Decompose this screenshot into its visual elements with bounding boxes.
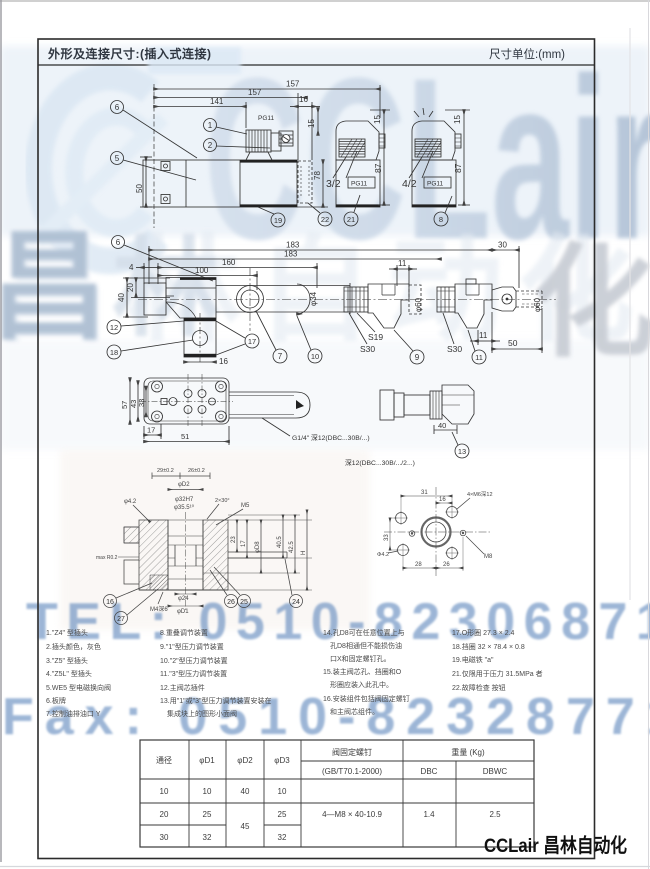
svg-text:16: 16 bbox=[106, 599, 114, 606]
svg-text:PG11: PG11 bbox=[351, 181, 368, 188]
svg-text:PG11: PG11 bbox=[258, 115, 275, 122]
svg-text:18.挡圈 32 × 78.4 × 0.8: 18.挡圈 32 × 78.4 × 0.8 bbox=[452, 642, 525, 651]
svg-text:32: 32 bbox=[278, 833, 287, 842]
svg-text:PG11: PG11 bbox=[427, 181, 444, 188]
svg-text:max R0.2: max R0.2 bbox=[96, 555, 118, 561]
svg-text:40: 40 bbox=[117, 293, 126, 302]
svg-text:尺寸单位:(mm): 尺寸单位:(mm) bbox=[489, 47, 565, 61]
svg-text:DBWC: DBWC bbox=[483, 767, 508, 776]
svg-text:φ4.2: φ4.2 bbox=[124, 499, 137, 505]
svg-text:141: 141 bbox=[210, 97, 224, 106]
svg-text:φ34: φ34 bbox=[309, 291, 318, 306]
svg-text:17: 17 bbox=[241, 540, 247, 547]
svg-text:4: 4 bbox=[129, 263, 134, 272]
svg-text:7.控制油排油口 Y: 7.控制油排油口 Y bbox=[46, 709, 101, 718]
svg-text:形圈应装入此孔中。: 形圈应装入此孔中。 bbox=[330, 680, 393, 689]
svg-text:M4深6: M4深6 bbox=[150, 605, 168, 613]
svg-text:15: 15 bbox=[307, 119, 316, 128]
svg-text:S30: S30 bbox=[447, 344, 462, 354]
svg-text:10: 10 bbox=[160, 787, 169, 796]
svg-text:10: 10 bbox=[278, 787, 287, 796]
svg-text:9: 9 bbox=[415, 353, 420, 362]
svg-text:11: 11 bbox=[479, 331, 488, 340]
svg-text:2×30°: 2×30° bbox=[215, 498, 230, 504]
svg-text:16.安装组件包括阀固定螺钉: 16.安装组件包括阀固定螺钉 bbox=[323, 694, 410, 703]
svg-text:孔D8相通但不能损伤油: 孔D8相通但不能损伤油 bbox=[330, 641, 402, 650]
svg-text:87: 87 bbox=[373, 163, 383, 173]
svg-text:φ60: φ60 bbox=[414, 297, 423, 312]
svg-text:183: 183 bbox=[284, 250, 298, 259]
svg-text:4."Z5L" 型插头: 4."Z5L" 型插头 bbox=[46, 669, 92, 678]
svg-text:15: 15 bbox=[373, 115, 382, 124]
svg-text:100: 100 bbox=[195, 266, 209, 275]
svg-text:DBC: DBC bbox=[421, 767, 438, 776]
svg-text:和主阀芯组件。: 和主阀芯组件。 bbox=[330, 707, 379, 716]
svg-text:32: 32 bbox=[203, 833, 212, 842]
svg-text:183: 183 bbox=[286, 241, 300, 250]
svg-text:S19: S19 bbox=[368, 332, 383, 342]
svg-text:26: 26 bbox=[443, 562, 450, 568]
svg-text:M5: M5 bbox=[241, 503, 250, 509]
svg-text:87: 87 bbox=[453, 163, 463, 173]
svg-text:10: 10 bbox=[203, 787, 212, 796]
svg-text:10: 10 bbox=[311, 352, 319, 361]
svg-text:21.仅限用于压力 31.5MPa 者: 21.仅限用于压力 31.5MPa 者 bbox=[452, 669, 543, 678]
svg-text:11: 11 bbox=[475, 353, 483, 362]
svg-text:6.板牌: 6.板牌 bbox=[46, 696, 66, 705]
svg-text:24: 24 bbox=[292, 599, 300, 606]
svg-text:Φ4.2: Φ4.2 bbox=[377, 552, 389, 558]
svg-text:6: 6 bbox=[116, 238, 121, 247]
svg-text:M8: M8 bbox=[484, 554, 493, 560]
svg-text:3."Z5" 型插头: 3."Z5" 型插头 bbox=[46, 656, 88, 665]
svg-text:17: 17 bbox=[248, 337, 256, 346]
svg-text:φD3: φD3 bbox=[274, 756, 290, 765]
svg-text:8: 8 bbox=[439, 215, 443, 224]
svg-text:2: 2 bbox=[208, 141, 213, 150]
svg-text:通径: 通径 bbox=[156, 755, 172, 765]
svg-text:4×M6深12: 4×M6深12 bbox=[467, 490, 493, 498]
svg-text:50: 50 bbox=[508, 338, 518, 348]
svg-text:G1/4" 深12(DBC...30B/...): G1/4" 深12(DBC...30B/...) bbox=[292, 433, 370, 442]
svg-text:8.重叠调节装置: 8.重叠调节装置 bbox=[160, 628, 208, 637]
svg-text:集成块上的图形小面阀: 集成块上的图形小面阀 bbox=[167, 709, 237, 718]
svg-text:φ60: φ60 bbox=[533, 297, 542, 312]
svg-text:φ35.5¹⁰: φ35.5¹⁰ bbox=[174, 504, 195, 511]
svg-text:φD2: φD2 bbox=[178, 482, 190, 488]
svg-text:H: H bbox=[301, 551, 307, 555]
svg-text:2.5: 2.5 bbox=[489, 810, 501, 819]
svg-text:31: 31 bbox=[421, 490, 428, 496]
svg-text:11: 11 bbox=[398, 259, 407, 268]
svg-text:26: 26 bbox=[227, 599, 235, 606]
svg-text:1: 1 bbox=[208, 121, 213, 130]
svg-text:5: 5 bbox=[115, 154, 120, 163]
svg-text:9."1"型压力调节装置: 9."1"型压力调节装置 bbox=[160, 642, 224, 651]
svg-text:13.用"1"或"3"型压力调节装置安装在: 13.用"1"或"3"型压力调节装置安装在 bbox=[160, 696, 271, 705]
svg-text:25: 25 bbox=[203, 810, 212, 819]
svg-text:12.主阀芯插件: 12.主阀芯插件 bbox=[160, 683, 205, 692]
svg-text:深12(DBC...30B/.../2...): 深12(DBC...30B/.../2...) bbox=[345, 458, 415, 467]
svg-text:40.5: 40.5 bbox=[277, 536, 283, 548]
svg-text:昌: 昌 bbox=[0, 222, 108, 354]
svg-text:化: 化 bbox=[533, 235, 650, 371]
svg-text:26±0.2: 26±0.2 bbox=[188, 468, 205, 474]
svg-text:57: 57 bbox=[120, 401, 129, 409]
svg-text:30: 30 bbox=[498, 241, 507, 250]
svg-text:φ24: φ24 bbox=[178, 596, 189, 602]
svg-text:25: 25 bbox=[240, 599, 248, 606]
svg-text:28: 28 bbox=[415, 562, 422, 568]
svg-text:外形及连接尺寸:(插入式连接): 外形及连接尺寸:(插入式连接) bbox=[48, 46, 212, 61]
svg-text:18: 18 bbox=[110, 348, 118, 357]
svg-text:φD2: φD2 bbox=[237, 756, 253, 765]
svg-text:2.插头颜色，灰色: 2.插头颜色，灰色 bbox=[46, 642, 101, 651]
svg-text:160: 160 bbox=[222, 258, 236, 267]
svg-text:φD8: φD8 bbox=[255, 541, 261, 553]
svg-text:12: 12 bbox=[110, 323, 118, 332]
svg-text:11."3"型压力调节装置: 11."3"型压力调节装置 bbox=[160, 669, 227, 678]
svg-text:16: 16 bbox=[299, 95, 308, 104]
svg-text:4/2: 4/2 bbox=[402, 178, 417, 190]
svg-text:7: 7 bbox=[278, 352, 283, 361]
svg-text:40: 40 bbox=[241, 787, 250, 796]
svg-text:口X和固定螺钉孔。: 口X和固定螺钉孔。 bbox=[330, 654, 391, 663]
svg-text:14.孔D8可在任意位置上与: 14.孔D8可在任意位置上与 bbox=[323, 628, 405, 637]
svg-text:17.O形圈 27.3 × 2.4: 17.O形圈 27.3 × 2.4 bbox=[452, 629, 515, 637]
svg-text:78: 78 bbox=[313, 171, 322, 180]
svg-text:阀固定螺钉: 阀固定螺钉 bbox=[332, 747, 372, 757]
svg-text:33: 33 bbox=[384, 534, 390, 541]
svg-text:22: 22 bbox=[321, 215, 329, 224]
svg-text:φ32H7: φ32H7 bbox=[175, 497, 194, 503]
svg-text:15.装主阀芯孔、挡圈和O: 15.装主阀芯孔、挡圈和O bbox=[323, 667, 402, 676]
svg-text:16: 16 bbox=[219, 357, 228, 366]
svg-text:φD1: φD1 bbox=[199, 756, 215, 765]
svg-text:19.电磁铁 "a": 19.电磁铁 "a" bbox=[452, 655, 494, 664]
svg-text:19: 19 bbox=[274, 216, 282, 225]
svg-text:4—M8 × 40-10.9: 4—M8 × 40-10.9 bbox=[322, 810, 382, 819]
svg-text:1."Z4" 型插头: 1."Z4" 型插头 bbox=[46, 628, 88, 637]
svg-text:40: 40 bbox=[438, 421, 446, 430]
svg-text:S30: S30 bbox=[360, 344, 375, 354]
svg-text:157: 157 bbox=[286, 80, 300, 89]
svg-text:17: 17 bbox=[147, 426, 155, 435]
svg-text:重量 (Kg): 重量 (Kg) bbox=[451, 747, 485, 757]
svg-text:5.WE5 型电磁换向阀: 5.WE5 型电磁换向阀 bbox=[46, 683, 111, 692]
svg-text:3/2: 3/2 bbox=[326, 178, 341, 190]
svg-text:φD1: φD1 bbox=[177, 609, 189, 615]
svg-text:1.4: 1.4 bbox=[423, 810, 435, 819]
svg-text:25: 25 bbox=[278, 810, 287, 819]
svg-text:157: 157 bbox=[248, 88, 262, 97]
svg-text:(GB/T70.1-2000): (GB/T70.1-2000) bbox=[322, 767, 382, 776]
svg-text:15: 15 bbox=[453, 115, 462, 124]
svg-text:21: 21 bbox=[347, 215, 355, 224]
svg-text:45: 45 bbox=[241, 822, 250, 831]
svg-text:23: 23 bbox=[231, 536, 237, 543]
svg-text:10."2"型压力调节装置: 10."2"型压力调节装置 bbox=[160, 656, 228, 665]
svg-text:51: 51 bbox=[181, 432, 189, 441]
svg-text:22.故障检查 按钮: 22.故障检查 按钮 bbox=[452, 683, 506, 692]
svg-text:33: 33 bbox=[137, 399, 146, 407]
svg-text:13: 13 bbox=[458, 447, 466, 456]
svg-text:CCLair 昌林自动化: CCLair 昌林自动化 bbox=[484, 834, 627, 857]
svg-text:20: 20 bbox=[160, 810, 169, 819]
svg-text:42.5: 42.5 bbox=[289, 541, 295, 553]
svg-text:6: 6 bbox=[115, 103, 120, 112]
svg-text:29±0.2: 29±0.2 bbox=[157, 468, 174, 474]
svg-text:16: 16 bbox=[439, 497, 446, 503]
svg-text:27: 27 bbox=[117, 616, 125, 623]
svg-text:30: 30 bbox=[160, 833, 169, 842]
